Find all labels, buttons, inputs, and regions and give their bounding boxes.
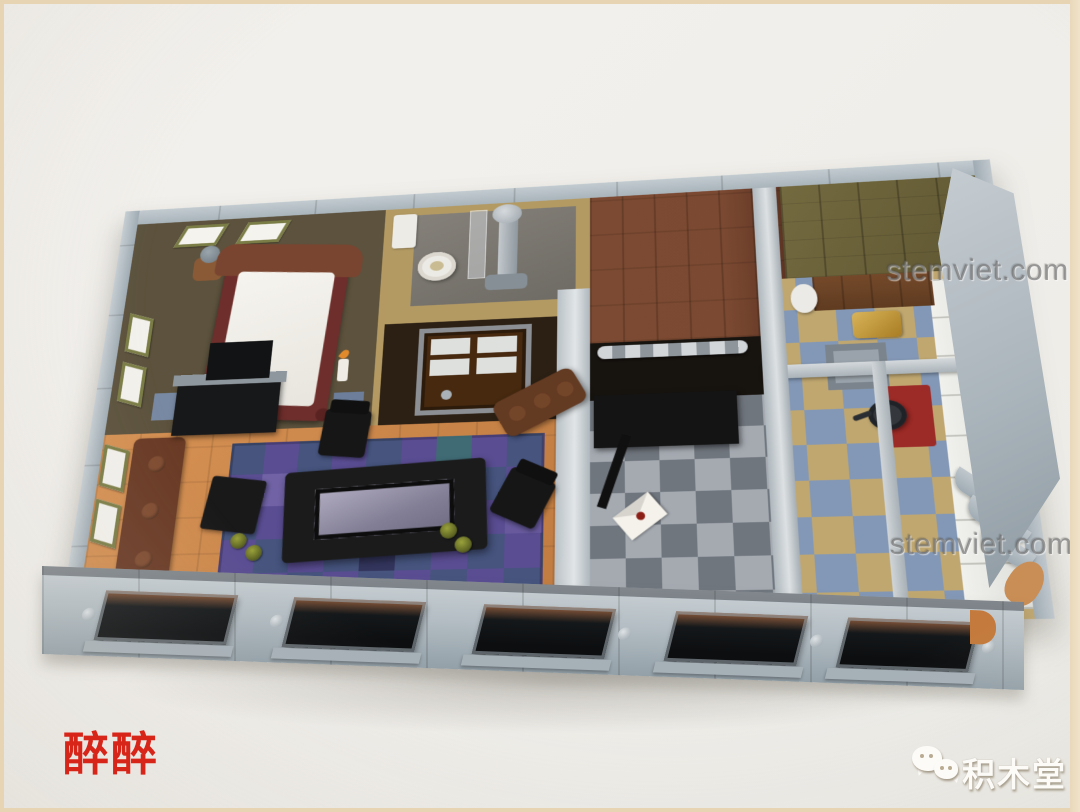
bench-stud	[140, 502, 160, 520]
hinge-icon	[81, 608, 97, 621]
door-glass-pane	[476, 356, 516, 374]
door-glass-pane	[477, 336, 517, 354]
shower-base	[485, 273, 528, 290]
watermark-stemviet-lower: stemviet.com	[890, 528, 1073, 562]
window-sill	[461, 654, 612, 670]
facade-window-4	[664, 611, 808, 665]
photo-background: stemviet.com stemviet.com 醉醉 积木堂	[0, 0, 1080, 812]
hinge-icon	[269, 614, 285, 627]
bathroom-sink	[392, 214, 418, 249]
wechat-icon	[912, 746, 962, 788]
partition-wall-center	[554, 288, 590, 625]
office-window-icon	[90, 498, 121, 548]
facade-window-5	[836, 618, 980, 672]
bubble-eye	[920, 754, 924, 758]
shower-glass-panel	[468, 210, 488, 279]
hinge-icon	[809, 634, 825, 647]
press-alcove	[590, 336, 764, 401]
watermark-brand-text: 积木堂	[962, 748, 1067, 796]
watermark-stemviet-upper: stemviet.com	[886, 254, 1069, 288]
bench-stud	[133, 551, 153, 569]
bench-stud	[554, 379, 577, 399]
bedroom-window-icon	[173, 223, 229, 247]
chair-back	[329, 399, 370, 414]
bedroom-window-icon	[117, 362, 147, 408]
watermark-red-stamp: 醉醉	[63, 718, 159, 784]
stove-chimney	[206, 340, 274, 380]
fireplace	[171, 374, 282, 436]
window-sill	[825, 668, 976, 684]
table-inset-screen	[314, 479, 455, 540]
printing-press	[594, 390, 739, 448]
lego-building	[0, 0, 1080, 812]
bubble-eye	[929, 754, 933, 758]
hinge-icon	[617, 627, 633, 640]
bubble-eye	[948, 766, 952, 770]
window-sill	[271, 647, 422, 663]
door-handle	[441, 390, 452, 400]
photo-frame-border-right	[1070, 0, 1080, 812]
chair	[317, 409, 372, 458]
envelope	[613, 492, 668, 541]
bedroom-window-icon	[124, 313, 153, 357]
facade-orange-detail	[970, 610, 996, 645]
window-sill	[83, 641, 234, 657]
metal-pipe-railing	[597, 340, 748, 359]
chat-bubble-small	[934, 759, 958, 779]
bubble-eye	[940, 766, 944, 770]
office-window-icon	[99, 444, 130, 492]
facade-window-3	[472, 604, 616, 658]
envelope-flap	[613, 492, 657, 528]
facade-window-2	[282, 597, 426, 651]
bench-stud	[531, 391, 554, 411]
bedroom-window-icon	[235, 220, 291, 245]
facade-window-1	[94, 590, 238, 644]
brass-faucet	[851, 310, 902, 338]
window-sill	[653, 661, 804, 677]
door-glass-pane	[429, 358, 469, 376]
candle	[337, 359, 349, 382]
bench-stud	[147, 456, 167, 473]
bench-stud	[506, 403, 528, 424]
door-glass-pane	[430, 338, 470, 356]
